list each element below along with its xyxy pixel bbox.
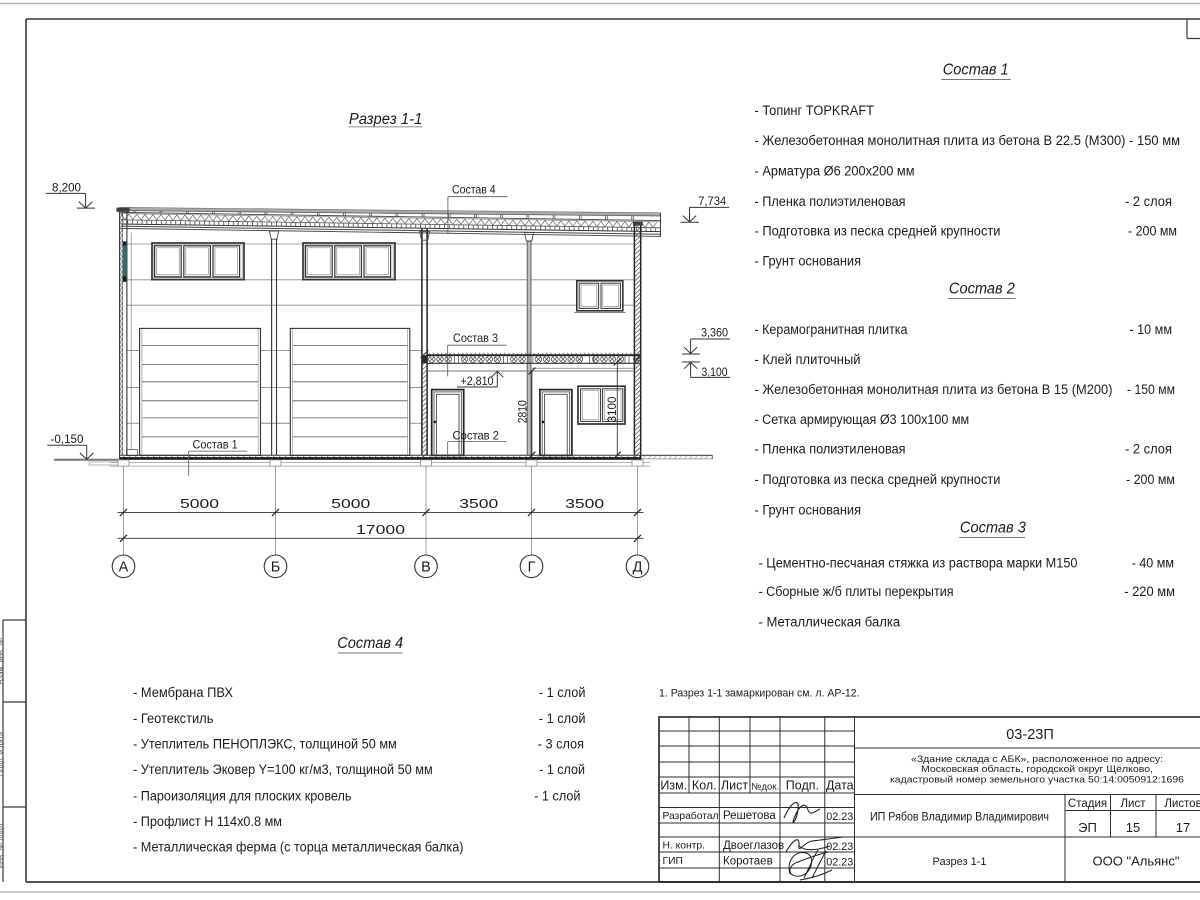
svg-text:Разрез 1-1: Разрез 1-1 — [932, 856, 986, 868]
svg-text:Дата: Дата — [826, 778, 854, 792]
svg-text:- Профлист Н 114х0.8 мм: - Профлист Н 114х0.8 мм — [133, 814, 282, 829]
svg-text:- Металлическая ферма (с торца: - Металлическая ферма (с торца металличе… — [133, 840, 464, 855]
svg-text:5000: 5000 — [331, 496, 370, 511]
svg-text:- 2 слоя: - 2 слоя — [1125, 194, 1172, 209]
svg-text:Подп.: Подп. — [786, 778, 819, 792]
svg-text:8,200: 8,200 — [52, 180, 81, 194]
svg-text:ЭП: ЭП — [1078, 820, 1097, 835]
svg-text:ИП Рябов Владимир Владимирович: ИП Рябов Владимир Владимирович — [870, 812, 1049, 824]
svg-text:2810: 2810 — [518, 400, 530, 423]
svg-text:- Геотекстиль: - Геотекстиль — [133, 711, 213, 726]
svg-text:- Утеплитель Эковер Y=100 кг/м: - Утеплитель Эковер Y=100 кг/м3, толщино… — [133, 762, 433, 777]
svg-text:Состав 3: Состав 3 — [453, 331, 498, 345]
svg-text:3500: 3500 — [565, 496, 604, 511]
svg-text:№док.: №док. — [751, 782, 779, 793]
svg-text:17: 17 — [1176, 820, 1190, 835]
svg-text:1. Разрез 1-1 замаркирован см.: 1. Разрез 1-1 замаркирован см. л. АР-12. — [659, 688, 860, 700]
svg-text:3,100: 3,100 — [702, 365, 728, 379]
svg-text:- 220 мм: - 220 мм — [1124, 584, 1175, 599]
svg-text:- Металлическая балка: - Металлическая балка — [759, 614, 901, 629]
svg-text:- 1 слой: - 1 слой — [539, 711, 586, 726]
svg-text:Инв. № подл.: Инв. № подл. — [0, 822, 5, 869]
svg-text:кадастровый номер земельного у: кадастровый номер земельного участка 50:… — [890, 774, 1184, 785]
svg-text:В: В — [421, 559, 431, 575]
svg-text:- 1 слой: - 1 слой — [539, 762, 585, 777]
svg-text:- 200 мм: - 200 мм — [1126, 472, 1175, 487]
svg-text:3,360: 3,360 — [701, 326, 728, 340]
svg-text:5000: 5000 — [180, 496, 219, 511]
svg-text:03-23П: 03-23П — [1006, 727, 1054, 743]
svg-text:+2,810: +2,810 — [461, 374, 494, 388]
svg-text:- Грунт основания: - Грунт основания — [755, 254, 862, 269]
svg-text:Г: Г — [528, 559, 536, 575]
svg-text:- Пленка полиэтиленовая: - Пленка полиэтиленовая — [755, 441, 906, 456]
svg-text:02.23: 02.23 — [826, 811, 853, 823]
svg-text:Д: Д — [633, 559, 643, 575]
svg-text:ООО "Альянс": ООО "Альянс" — [1093, 853, 1180, 868]
svg-text:- Мембрана ПВХ: - Мембрана ПВХ — [133, 685, 233, 700]
svg-text:Разрез 1-1: Разрез 1-1 — [349, 111, 423, 128]
svg-text:Стадия: Стадия — [1068, 798, 1107, 810]
svg-text:- Грунт основания: - Грунт основания — [755, 502, 862, 517]
svg-text:Взам. инв. №: Взам. инв. № — [0, 638, 5, 684]
svg-text:- Клей плиточный: - Клей плиточный — [755, 352, 861, 367]
svg-text:- Утеплитель ПЕНОПЛЭКС, толщин: - Утеплитель ПЕНОПЛЭКС, толщиной 50 мм — [133, 737, 397, 752]
svg-text:- Топинг TOPKRAFT: - Топинг TOPKRAFT — [755, 103, 875, 118]
svg-text:02.23: 02.23 — [826, 841, 853, 853]
svg-text:- 150 мм: - 150 мм — [1127, 382, 1175, 397]
svg-text:- 200 мм: - 200 мм — [1128, 223, 1177, 238]
svg-text:Листов: Листов — [1164, 798, 1200, 810]
svg-text:- 3 слоя: - 3 слоя — [538, 737, 584, 752]
svg-text:ГИП: ГИП — [663, 856, 683, 867]
svg-text:- Подготовка из песка средней: - Подготовка из песка средней крупности — [755, 223, 1001, 238]
svg-text:Коротаев: Коротаев — [723, 855, 773, 867]
svg-text:- Сетка армирующая Ø3 100х100: - Сетка армирующая Ø3 100х100 мм — [755, 412, 970, 427]
svg-text:- Подготовка из песка средней: - Подготовка из песка средней крупности — [755, 472, 1001, 487]
svg-text:Состав 2: Состав 2 — [453, 428, 500, 442]
svg-text:Состав 4: Состав 4 — [452, 182, 496, 196]
svg-text:- Цементно-песчаная стяжка из: - Цементно-песчаная стяжка из раствора м… — [759, 555, 1078, 570]
svg-text:7,734: 7,734 — [698, 194, 726, 208]
svg-text:Решетова: Решетова — [723, 810, 776, 822]
svg-text:- 40 мм: - 40 мм — [1132, 555, 1174, 570]
svg-text:Лист: Лист — [721, 778, 748, 792]
svg-text:- Пленка полиэтиленовая: - Пленка полиэтиленовая — [755, 194, 906, 209]
svg-text:Состав 4: Состав 4 — [337, 635, 403, 652]
svg-text:- Арматура Ø6 200х200 мм: - Арматура Ø6 200х200 мм — [755, 164, 915, 179]
svg-text:Состав 1: Состав 1 — [193, 438, 238, 452]
svg-text:Состав 1: Состав 1 — [943, 62, 1009, 79]
svg-text:- Керамогранитная плитка: - Керамогранитная плитка — [755, 322, 908, 337]
svg-text:Двоеглазов: Двоеглазов — [723, 840, 784, 852]
svg-text:- 2 слоя: - 2 слоя — [1125, 441, 1172, 456]
svg-text:- 1 слой: - 1 слой — [539, 685, 586, 700]
svg-text:Лист: Лист — [1121, 798, 1147, 810]
svg-text:- Железобетонная монолитная п: - Железобетонная монолитная плита из бет… — [755, 382, 1113, 397]
svg-text:Изм.: Изм. — [660, 778, 687, 792]
svg-text:Разработал: Разработал — [663, 810, 719, 822]
svg-text:17000: 17000 — [356, 522, 405, 537]
svg-text:- Сборные ж/б плиты перекрытия: - Сборные ж/б плиты перекрытия — [759, 584, 954, 599]
svg-text:Б: Б — [271, 559, 281, 575]
svg-text:Состав 2: Состав 2 — [949, 281, 1015, 298]
svg-text:А: А — [119, 559, 129, 575]
svg-text:3500: 3500 — [459, 496, 498, 511]
svg-text:02.23: 02.23 — [826, 856, 853, 868]
svg-text:15: 15 — [1126, 820, 1140, 835]
svg-text:3100: 3100 — [605, 396, 619, 422]
svg-text:- 1 слой: - 1 слой — [534, 788, 580, 803]
svg-text:Подп. и дата: Подп. и дата — [0, 731, 5, 776]
svg-text:Кол.: Кол. — [692, 778, 717, 792]
svg-text:Н. контр.: Н. контр. — [663, 840, 706, 851]
svg-text:-0,150: -0,150 — [51, 432, 84, 446]
svg-text:- 10 мм: - 10 мм — [1129, 322, 1172, 337]
svg-text:Состав 3: Состав 3 — [960, 520, 1026, 537]
svg-text:- Железобетонная монолитная п: - Железобетонная монолитная плита из бет… — [755, 133, 1181, 148]
svg-text:- Пароизоляция для плоских кро: - Пароизоляция для плоских кровель — [133, 788, 352, 803]
